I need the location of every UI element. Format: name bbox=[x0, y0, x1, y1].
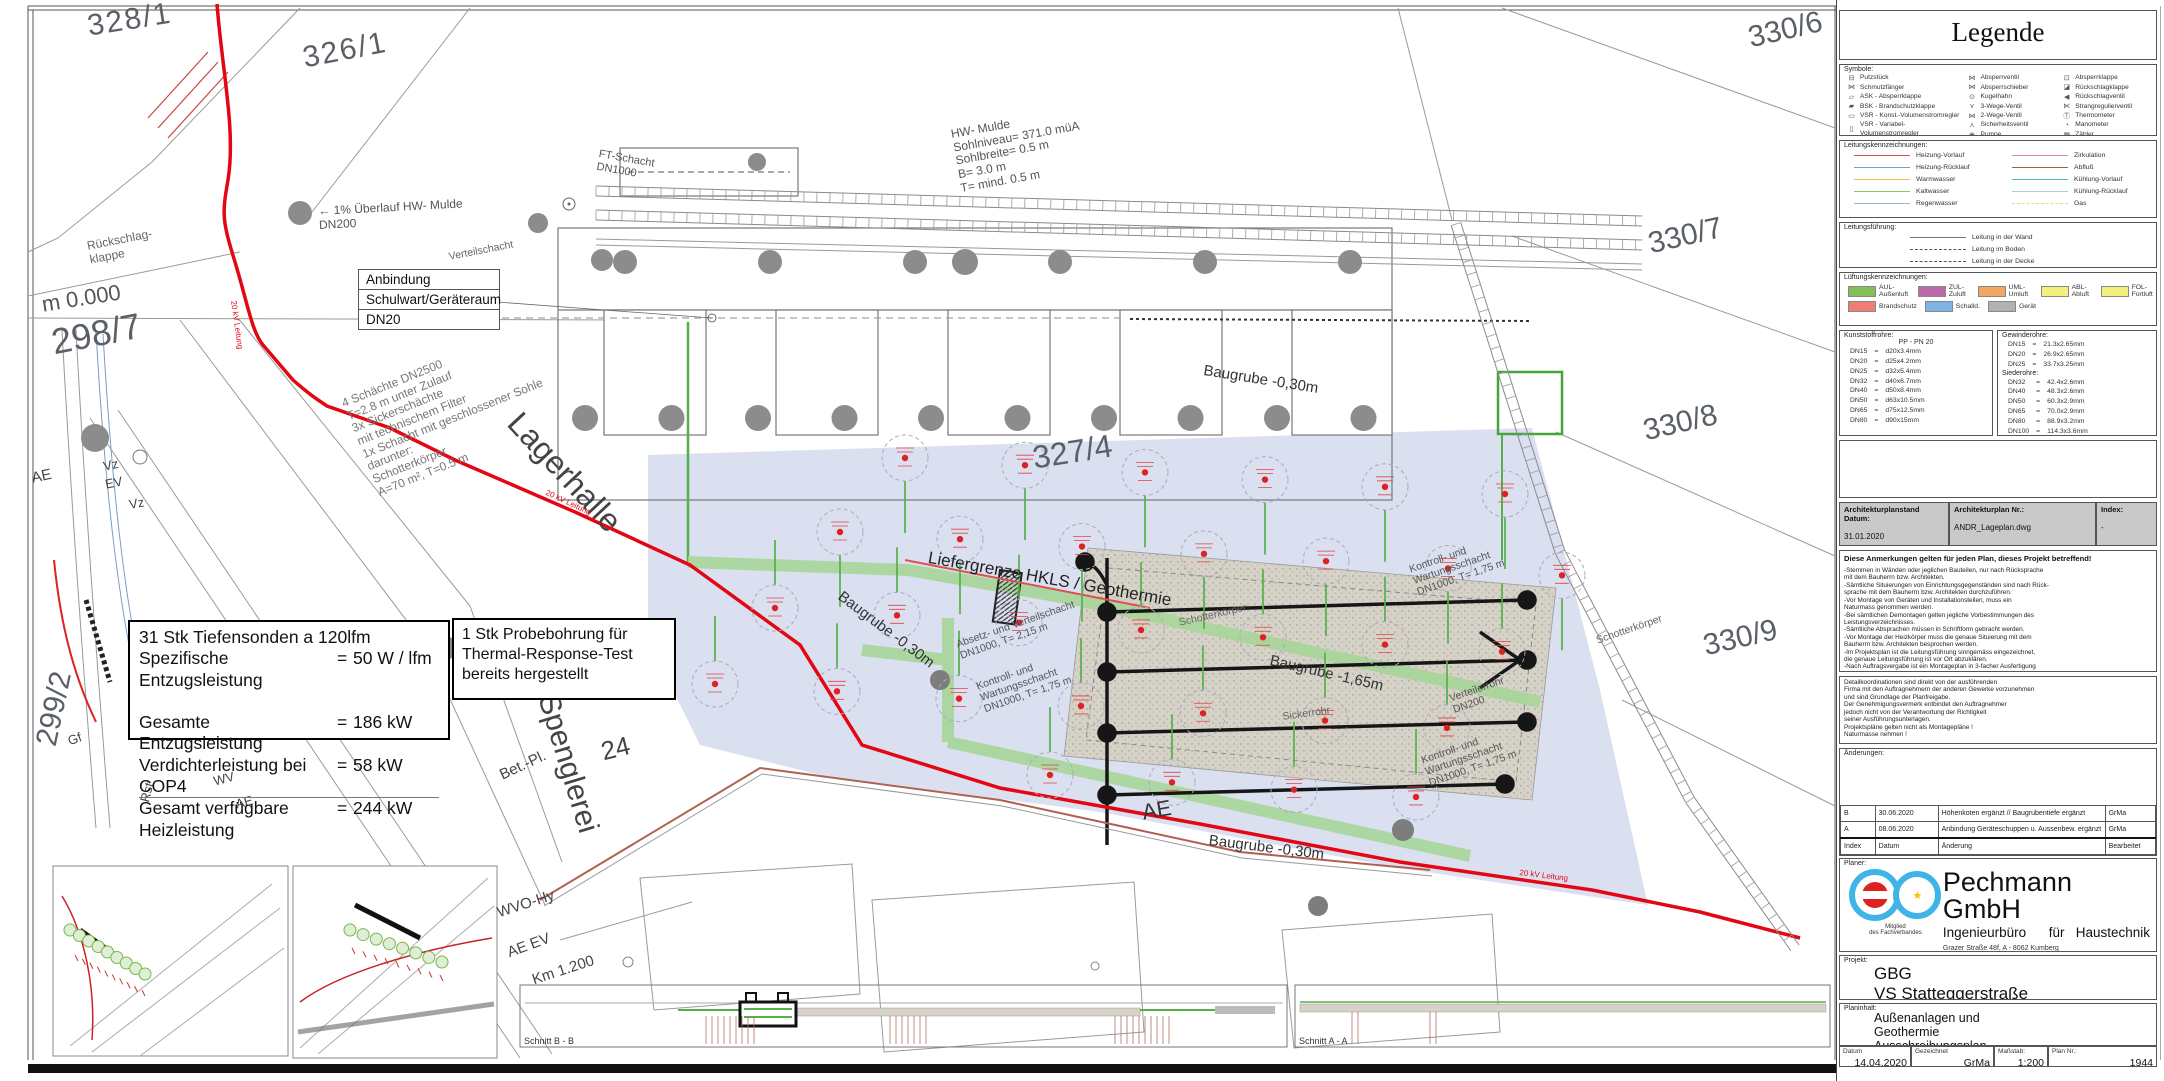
band-tick bbox=[1664, 757, 1673, 762]
band-tick bbox=[1739, 871, 1747, 877]
legend-symbol-row: ◪Rückschlagklappe bbox=[2061, 83, 2154, 92]
tiefensonden-row bbox=[139, 691, 439, 712]
inset-tree bbox=[410, 947, 422, 959]
tiefensonden-cell: = bbox=[337, 648, 353, 691]
tiefensonden-cell bbox=[337, 691, 353, 712]
line-swatch bbox=[2012, 155, 2068, 156]
changes-row: IndexDatumÄnderungBearbeitet bbox=[1841, 838, 2156, 855]
tiefensonde-marker bbox=[1260, 634, 1266, 640]
pipe-table-cell: DN80 bbox=[1850, 416, 1874, 426]
pipe-table-cell: = bbox=[2036, 378, 2047, 388]
symbol-label: VSR - Variabel-Volumenstromregler bbox=[1860, 121, 1962, 136]
band-tick bbox=[1701, 818, 1709, 824]
symbol-glyph-icon: ◪ bbox=[2061, 83, 2072, 92]
pipe-table-row: DN80=88.9x3.2mm bbox=[2008, 417, 2095, 427]
tiefensonden-row: Verdichterleistung bei COP4=58 kW bbox=[139, 755, 439, 799]
tiefensonde-marker bbox=[1047, 772, 1053, 778]
pipe-table-row: DN32=d40x6.7mm bbox=[1850, 377, 1932, 387]
pipe-table-cell: 114.3x3.6mm bbox=[2047, 427, 2095, 436]
symbol-label: Zähler bbox=[2075, 131, 2094, 136]
legend-symbol-row: ▯VSR - Variabel-Volumenstromregler bbox=[1846, 121, 1962, 136]
tiefensonde-marker bbox=[1169, 779, 1175, 785]
footer-massstab-value: 1:200 bbox=[1998, 1057, 2044, 1069]
routing-row: Leitung in der Wand bbox=[1910, 231, 2156, 243]
pipe-table-cell: DN20 bbox=[1850, 357, 1874, 367]
symbol-glyph-icon: ⋉ bbox=[2061, 102, 2072, 111]
pipe-table-row: DN15=21.3x2.65mm bbox=[2008, 340, 2092, 350]
pipe-table-cell: d32x5.4mm bbox=[1885, 367, 1931, 377]
pipe-table-cell: d90x15mm bbox=[1885, 416, 1931, 426]
pipe-table-cell: = bbox=[1874, 367, 1885, 377]
changes-cell: GrMa bbox=[2105, 822, 2155, 839]
footer-massstab-label: Maßstab: bbox=[1998, 1048, 2044, 1055]
symbol-label: Putzstück bbox=[1860, 74, 1889, 83]
tiefensonde-marker bbox=[957, 536, 963, 542]
tiefensonde-marker bbox=[1262, 476, 1268, 482]
hw-mulde-edge bbox=[596, 239, 1642, 270]
vent-code-item: ZUL-Zuluft bbox=[1918, 284, 1970, 298]
pipe-table-cell: 26.9x2.65mm bbox=[2043, 350, 2091, 360]
plastic-pipes-header: PP - PN 20 bbox=[1840, 339, 1992, 346]
routing-swatch bbox=[1910, 261, 1966, 262]
plan-meta-date-label: Architekturplanstand Datum: bbox=[1844, 505, 1944, 523]
tiefensonden-line1: 31 Stk Tiefensonden a 120lfm bbox=[139, 627, 439, 648]
band-tick bbox=[1652, 734, 1661, 739]
line-routing-label: Leitungsführung: bbox=[1840, 223, 2156, 231]
tiefensonde-marker bbox=[837, 529, 843, 535]
tiefensonde-marker bbox=[1200, 710, 1206, 716]
plan-meta-nr-cell: Architekturplan Nr.: ANDR_Lageplan.dwg bbox=[1949, 502, 2096, 546]
eu-badge-icon: ★ bbox=[1893, 871, 1941, 919]
symbol-glyph-icon: ⋈ bbox=[1966, 74, 1977, 83]
tiefensonden-cell: 186 kW bbox=[353, 712, 439, 755]
tiefensonden-row: Spezifische Entzugsleistung=50 W / lfm bbox=[139, 648, 439, 691]
pipe-table-row: DN50=d63x10.5mm bbox=[1850, 396, 1932, 406]
changes-cell: Datum bbox=[1875, 838, 1938, 855]
routing-swatch bbox=[1910, 237, 1966, 238]
band-tick bbox=[1616, 665, 1625, 670]
pipe-table-cell: 70.0x2.9mm bbox=[2047, 407, 2095, 417]
band-tick bbox=[1586, 607, 1595, 612]
symbol-glyph-icon: ◀ bbox=[2061, 93, 2072, 102]
symbol-label: 3-Wege-Ventil bbox=[1980, 103, 2021, 112]
changes-cell: GrMa bbox=[2105, 806, 2155, 822]
symbol-glyph-icon: Ⓣ bbox=[2061, 112, 2072, 121]
routing-row: Leitung im Boden bbox=[1910, 243, 2156, 255]
projekt-section: Projekt: GBG VS Statteggerstraße bbox=[1839, 955, 2157, 1000]
pipe-table-cell: = bbox=[2036, 387, 2047, 397]
pipe-table-cell: d20x3.4mm bbox=[1885, 347, 1931, 357]
tree-circle bbox=[745, 405, 771, 431]
hw-mulde-band-1 bbox=[596, 186, 1642, 226]
pipe-table-row: DN25=d32x5.4mm bbox=[1850, 367, 1932, 377]
probebohrung-info-box: 1 Stk Probebohrung für Thermal-Response-… bbox=[452, 618, 676, 700]
symbol-label: Rückschlagklappe bbox=[2075, 84, 2129, 93]
legend-symbol-row: ⓉThermometer bbox=[2061, 112, 2154, 121]
vent-color-chip bbox=[2101, 286, 2129, 297]
tree-circle bbox=[832, 405, 858, 431]
line-codes-label: Leitungskennzeichnungen: bbox=[1840, 141, 2156, 149]
tiefensonde-marker bbox=[1079, 543, 1085, 549]
band-tick bbox=[1769, 914, 1777, 920]
routing-label: Leitung in der Decke bbox=[1972, 258, 2034, 265]
band-tick bbox=[1682, 791, 1691, 796]
routing-label: Leitung in der Wand bbox=[1972, 234, 2033, 241]
legend-symbol-row: ◔Manometer bbox=[2061, 121, 2154, 130]
tiefensonden-row: Gesamt verfügbare Heizleistung=244 kW bbox=[139, 798, 439, 841]
footer-gezeichnet-value: GrMa bbox=[1915, 1057, 1990, 1069]
changes-cell: 08.06.2020 bbox=[1875, 822, 1938, 839]
line-code-label: Abfluß bbox=[2074, 164, 2094, 171]
line-swatch bbox=[2012, 203, 2068, 204]
inset-tree bbox=[357, 929, 369, 941]
band-tick bbox=[1610, 653, 1619, 658]
tree-circle bbox=[572, 405, 598, 431]
band-tick bbox=[1506, 396, 1516, 399]
changes-cell: B bbox=[1841, 806, 1876, 822]
footer-plannr-cell: Plan Nr.: 1944 bbox=[2048, 1046, 2157, 1067]
line-code-row: Warmwasser bbox=[1840, 173, 1998, 185]
band-tick bbox=[1761, 903, 1769, 909]
anbindung-line-2: Schulwart/Geräteraum bbox=[358, 289, 500, 310]
pipe-table-cell: DN65 bbox=[1850, 406, 1874, 416]
projekt-text: GBG VS Statteggerstraße bbox=[1874, 964, 2156, 1000]
tiefensonde-marker bbox=[956, 695, 962, 701]
pipe-table-cell: 88.9x3.2mm bbox=[2047, 417, 2095, 427]
changes-cell: Index bbox=[1841, 838, 1876, 855]
pipe-table-cell: = bbox=[2032, 350, 2043, 360]
tree-circle bbox=[528, 213, 548, 233]
tiefensonde-marker bbox=[834, 688, 840, 694]
plan-meta-date-value: 31.01.2020 bbox=[1844, 532, 1944, 541]
line-code-label: Heizung-Rücklauf bbox=[1916, 164, 1970, 171]
legend-symbol-row: ⋈Schmutzfänger bbox=[1846, 83, 1962, 92]
pipe-table-cell: = bbox=[1874, 347, 1885, 357]
symbol-glyph-icon: ⊙ bbox=[1966, 93, 1977, 102]
inset-tree bbox=[139, 968, 151, 980]
line-code-row: Abfluß bbox=[1998, 161, 2156, 173]
legend-title-box: Legende bbox=[1839, 10, 2157, 60]
changes-cell: A bbox=[1841, 822, 1876, 839]
changes-label: Änderungen: bbox=[1840, 749, 2156, 757]
vent-code-item: ABL-Abluft bbox=[2041, 284, 2093, 298]
tree-circle bbox=[918, 405, 944, 431]
band-tick bbox=[1693, 808, 1701, 814]
band-tick bbox=[1670, 768, 1679, 773]
tiefensonde-marker bbox=[1291, 786, 1297, 792]
pipe-table-cell: = bbox=[2036, 427, 2047, 436]
label-vz2: Vz bbox=[128, 495, 146, 512]
tiefensonden-info-box: 31 Stk Tiefensonden a 120lfm Spezifische… bbox=[128, 620, 450, 740]
line-code-row: Zirkulation bbox=[1998, 149, 2156, 161]
tiefensonde-marker bbox=[1138, 627, 1144, 633]
tiefensonde-marker bbox=[1502, 491, 1508, 497]
pipe-table-row: DN65=70.0x2.9mm bbox=[2008, 407, 2095, 417]
tiefensonden-cell bbox=[139, 691, 337, 712]
line-code-row: Kühlung-Rücklauf bbox=[1998, 185, 2156, 197]
symbol-label: ASK - Absperrklappe bbox=[1860, 93, 1921, 102]
tiefensonde-marker bbox=[712, 681, 718, 687]
tiefensonde-marker bbox=[1322, 717, 1328, 723]
band-tick bbox=[1574, 584, 1583, 589]
line-code-label: Zirkulation bbox=[2074, 152, 2105, 159]
footer-row: Datum 14.04.2020 Gezeichnet GrMa Maßstab… bbox=[1839, 1046, 2157, 1067]
hw-mulde-band-2 bbox=[596, 210, 1642, 250]
pipe-table-cell: DN80 bbox=[2008, 417, 2036, 427]
plan-meta-date-cell: Architekturplanstand Datum: 31.01.2020 bbox=[1839, 502, 1949, 546]
projekt-label: Projekt: bbox=[1840, 956, 2156, 964]
line-swatch bbox=[1854, 191, 1910, 192]
footer-plannr-value: 1944 bbox=[2052, 1057, 2153, 1069]
vent-code-label: ZUL-Zuluft bbox=[1949, 284, 1970, 298]
inset-tree bbox=[383, 938, 395, 950]
band-tick bbox=[1459, 247, 1469, 250]
band-tick bbox=[1491, 346, 1501, 349]
symbol-label: VSR - Konst.-Volumenstromregler bbox=[1860, 112, 1959, 121]
band-tick bbox=[1455, 235, 1465, 238]
footer-plannr-label: Plan Nr.: bbox=[2052, 1048, 2153, 1055]
anbindung-line-3: DN20 bbox=[358, 309, 500, 330]
symbol-label: Rückschlagventil bbox=[2075, 93, 2124, 102]
ventilation-codes-label: Lüftungskennzeichnungen: bbox=[1840, 273, 2156, 281]
line-code-label: Kühlung-Rücklauf bbox=[2074, 188, 2128, 195]
band-tick bbox=[1475, 297, 1485, 300]
pipe-table-cell: DN40 bbox=[1850, 386, 1874, 396]
vent-code-item: UML-Umluft bbox=[1978, 284, 2033, 298]
tiefensonden-cell: = bbox=[337, 755, 353, 798]
pipe-table-row: DN40=d50x8.4mm bbox=[1850, 386, 1932, 396]
symbol-glyph-icon: ▦ bbox=[2061, 131, 2072, 136]
tree-circle bbox=[758, 250, 782, 274]
changes-section: Änderungen: B30.06.2020Höhenkoten ergänz… bbox=[1839, 748, 2157, 856]
changes-cell: Änderung bbox=[1938, 838, 2105, 855]
pipe-table-cell: d75x12.5mm bbox=[1885, 406, 1931, 416]
legend-symbol-row: ◀Rückschlagventil bbox=[2061, 93, 2154, 102]
plan-meta-index-value: - bbox=[2101, 523, 2152, 532]
pipe-table-row: DN80=d90x15mm bbox=[1850, 416, 1932, 426]
pipe-table-cell: DN50 bbox=[1850, 396, 1874, 406]
pipe-table-row: DN50=60.3x2.9mm bbox=[2008, 397, 2095, 407]
tiefensonde-marker bbox=[1444, 725, 1450, 731]
tree-circle bbox=[1264, 405, 1290, 431]
pipe-table-cell: DN25 bbox=[2008, 360, 2032, 370]
inset-tree bbox=[436, 956, 448, 968]
band-tick bbox=[1724, 850, 1732, 856]
notes-section: Diese Anmerkungen gelten für jeden Plan,… bbox=[1839, 550, 2157, 672]
tree-circle bbox=[952, 249, 978, 275]
line-code-label: Warmwasser bbox=[1916, 176, 1955, 183]
pipe-table-cell: DN100 bbox=[2008, 427, 2036, 436]
vent-code-item: Brandschutz bbox=[1848, 301, 1917, 312]
tree-circle bbox=[1338, 250, 1362, 274]
plastic-pipes-table: Kunststoffrohre: PP - PN 20 DN15=d20x3.4… bbox=[1839, 330, 1993, 436]
tree-circle bbox=[748, 153, 766, 171]
footer-datum-cell: Datum 14.04.2020 bbox=[1839, 1046, 1911, 1067]
pipe-table-cell: = bbox=[1874, 406, 1885, 416]
notes-heading: Diese Anmerkungen gelten für jeden Plan,… bbox=[1840, 551, 2156, 565]
tiefensonden-cell bbox=[353, 691, 439, 712]
band-tick bbox=[1471, 284, 1481, 287]
symbols-section: Symbole: ⊟Putzstück⋈Schmutzfänger▱ASK - … bbox=[1839, 64, 2157, 136]
vent-color-chip bbox=[1988, 301, 2016, 312]
pipe-table-cell: = bbox=[2036, 417, 2047, 427]
legend-symbol-row: ⋉Strangregulierventil bbox=[2061, 102, 2154, 111]
vent-color-chip bbox=[1925, 301, 1953, 312]
band-tick bbox=[1754, 893, 1762, 899]
stamp-blank-box bbox=[1839, 440, 2157, 498]
pipe-table-row: DN20=26.9x2.65mm bbox=[2008, 350, 2092, 360]
plan-meta-index-label: Index: bbox=[2101, 505, 2152, 514]
tiefensonde-marker bbox=[1142, 469, 1148, 475]
line-code-row: Heizung-Rücklauf bbox=[1840, 161, 1998, 173]
label-schnitt-a: Schnitt A - A bbox=[1299, 1036, 1348, 1046]
symbol-label: 2-Wege-Ventil bbox=[1980, 112, 2021, 121]
legend-symbol-row: ⋈Absperrventil bbox=[1966, 74, 2057, 83]
legend-symbol-row: ⋈Absperrschieber bbox=[1966, 83, 2057, 92]
tiefensonde-marker bbox=[1559, 572, 1565, 578]
threaded-pipes-table: Gewinderohre: DN15=21.3x2.65mmDN20=26.9x… bbox=[1997, 330, 2157, 436]
symbol-label: Manometer bbox=[2075, 121, 2108, 130]
band-tick bbox=[1731, 861, 1739, 867]
band-tick bbox=[1467, 272, 1477, 275]
symbol-label: Thermometer bbox=[2075, 112, 2115, 121]
band-tick bbox=[1628, 688, 1637, 693]
symbol-label: Absperrschieber bbox=[1980, 84, 2028, 93]
symbol-label: Strangregulierventil bbox=[2075, 103, 2132, 112]
detail-note-section: Detailkoordinationen sind direkt von der… bbox=[1839, 676, 2157, 744]
tree-circle bbox=[1005, 405, 1031, 431]
tiefensonde-marker bbox=[1382, 641, 1388, 647]
band-tick bbox=[1686, 797, 1694, 803]
tiefensonde-marker bbox=[1022, 462, 1028, 468]
tree-circle bbox=[903, 250, 927, 274]
pipe-table-cell: d63x10.5mm bbox=[1885, 396, 1931, 406]
tree-circle bbox=[1048, 250, 1072, 274]
label-ae-road: AE bbox=[1140, 795, 1173, 825]
vent-color-chip bbox=[2041, 286, 2069, 297]
vent-color-chip bbox=[1848, 286, 1876, 297]
planer-company: Pechmann GmbH bbox=[1943, 869, 2150, 923]
routing-row: Leitung in der Decke bbox=[1910, 255, 2156, 267]
tiefensonden-cell: Spezifische Entzugsleistung bbox=[139, 648, 337, 691]
pipe-table-cell: 60.3x2.9mm bbox=[2047, 397, 2095, 407]
line-code-label: Gas bbox=[2074, 200, 2086, 207]
plastic-pipes-label: Kunststoffrohre: bbox=[1840, 331, 1992, 339]
symbol-label: Pumpe bbox=[1980, 131, 2001, 136]
legend-symbol-row: ▱ASK - Absperrklappe bbox=[1846, 93, 1962, 102]
inset-tree bbox=[344, 924, 356, 936]
line-code-label: Regenwasser bbox=[1916, 200, 1958, 207]
legend-symbol-row: ▰BSK - Brandschutzklappe bbox=[1846, 102, 1962, 111]
planer-subtitle: Ingenieurbüro für Haustechnik bbox=[1943, 925, 2150, 940]
line-routing-section: Leitungsführung: Leitung in der WandLeit… bbox=[1839, 222, 2157, 268]
legend-symbol-row: ▭VSR - Konst.-Volumenstromregler bbox=[1846, 112, 1962, 121]
symbol-glyph-icon: ◔ bbox=[2061, 121, 2072, 130]
tiefensonde-marker bbox=[1078, 703, 1084, 709]
tree-circle bbox=[613, 250, 637, 274]
band-tick bbox=[1580, 596, 1589, 601]
band-tick bbox=[1502, 384, 1512, 387]
vent-color-chip bbox=[1848, 301, 1876, 312]
line-codes-section: Leitungskennzeichnungen: Heizung-Vorlauf… bbox=[1839, 140, 2157, 218]
pipe-table-cell: d50x8.4mm bbox=[1885, 386, 1931, 396]
changes-row: A08.06.2020Anbindung Geräteschuppen u. A… bbox=[1841, 822, 2156, 839]
pipe-table-cell: 33.7x3.25mm bbox=[2043, 360, 2091, 370]
pipe-table-row: DN65=d75x12.5mm bbox=[1850, 406, 1932, 416]
planinhalt-section: Planinhalt: Außenanlagen und Geothermie … bbox=[1839, 1003, 2157, 1046]
tree-circle bbox=[591, 249, 613, 271]
pipe-table-cell: = bbox=[2036, 397, 2047, 407]
pipe-table-row: DN25=33.7x3.25mm bbox=[2008, 360, 2092, 370]
planinhalt-text: Außenanlagen und Geothermie Ausschreibun… bbox=[1874, 1012, 2156, 1046]
tiefensonde-marker bbox=[894, 612, 900, 618]
pipe-table-cell: = bbox=[1874, 386, 1885, 396]
planer-label: Planer: bbox=[1840, 859, 2156, 867]
pipe-table-cell: 21.3x2.65mm bbox=[2043, 340, 2091, 350]
ventilation-codes-section: Lüftungskennzeichnungen: AUL-AußenluftZU… bbox=[1839, 272, 2157, 326]
pipe-table-cell: = bbox=[1874, 357, 1885, 367]
line-code-label: Heizung-Vorlauf bbox=[1916, 152, 1964, 159]
tree-circle bbox=[659, 405, 685, 431]
band-tick bbox=[1776, 924, 1784, 930]
pipe-table-cell: DN32 bbox=[1850, 377, 1874, 387]
label-vz1: Vz bbox=[102, 457, 120, 475]
pipe-table-cell: d40x6.7mm bbox=[1885, 377, 1931, 387]
inset-tree bbox=[370, 933, 382, 945]
band-tick bbox=[1510, 408, 1520, 411]
symbol-glyph-icon: ⊡ bbox=[2061, 74, 2072, 83]
footer-datum-value: 14.04.2020 bbox=[1843, 1057, 1907, 1069]
pipe-table-cell: DN20 bbox=[2008, 350, 2032, 360]
pipe-table-cell: DN40 bbox=[2008, 387, 2036, 397]
vent-code-item: FOL-Fortluft bbox=[2101, 284, 2156, 298]
tiefensonden-cell: 58 kW bbox=[353, 755, 439, 798]
vent-code-item: Schalld. bbox=[1925, 301, 1980, 312]
tree-circle bbox=[1193, 250, 1217, 274]
vent-code-label: FOL-Fortluft bbox=[2132, 284, 2156, 298]
band-tick bbox=[1658, 745, 1667, 750]
changes-cell: Anbindung Geräteschuppen u. Aussenbew. e… bbox=[1938, 822, 2105, 839]
band-tick bbox=[1494, 359, 1504, 362]
tiefensonde-marker bbox=[1382, 484, 1388, 490]
notes-body: -Stemmen in Wänden oder jeglichen Bautei… bbox=[1840, 565, 2156, 672]
symbol-label: Kugelhahn bbox=[1980, 93, 2012, 102]
pipe-table-cell: DN25 bbox=[1850, 367, 1874, 377]
symbol-label: Absperrklappe bbox=[2075, 74, 2118, 83]
changes-cell: Höhenkoten ergänzt // Baugrubentiefe erg… bbox=[1938, 806, 2105, 822]
band-tick bbox=[1451, 222, 1461, 225]
tiefensonde-marker bbox=[1201, 551, 1207, 557]
symbol-glyph-icon: ◉ bbox=[1966, 131, 1977, 136]
vent-color-chip bbox=[1918, 286, 1946, 297]
vent-code-item: Gerät bbox=[1988, 301, 2036, 312]
pipe-table-cell: = bbox=[1874, 377, 1885, 387]
plan-meta-row: Architekturplanstand Datum: 31.01.2020 A… bbox=[1839, 502, 2157, 546]
legend-symbol-row: ⋎3-Wege-Ventil bbox=[1966, 102, 2057, 111]
tiefensonde-marker bbox=[1413, 794, 1419, 800]
plan-meta-nr-label: Architekturplan Nr.: bbox=[1954, 505, 2091, 514]
plan-meta-index-cell: Index: - bbox=[2096, 502, 2157, 546]
symbol-glyph-icon: ▭ bbox=[1846, 112, 1857, 121]
line-code-label: Kühlung-Vorlauf bbox=[2074, 176, 2122, 183]
site-plan-sheet: 328/1 326/1 330/6 330/7 330/8 330/9 327/… bbox=[0, 0, 2164, 1081]
symbol-label: Schmutzfänger bbox=[1860, 84, 1904, 93]
pipe-table-cell: 42.4x2.6mm bbox=[2047, 378, 2095, 388]
legend-symbol-row: ⋏Sicherheitsventil bbox=[1966, 121, 2057, 130]
band-tick bbox=[1514, 421, 1524, 424]
tiefensonde-marker bbox=[1323, 558, 1329, 564]
footer-massstab-cell: Maßstab: 1:200 bbox=[1994, 1046, 2048, 1067]
